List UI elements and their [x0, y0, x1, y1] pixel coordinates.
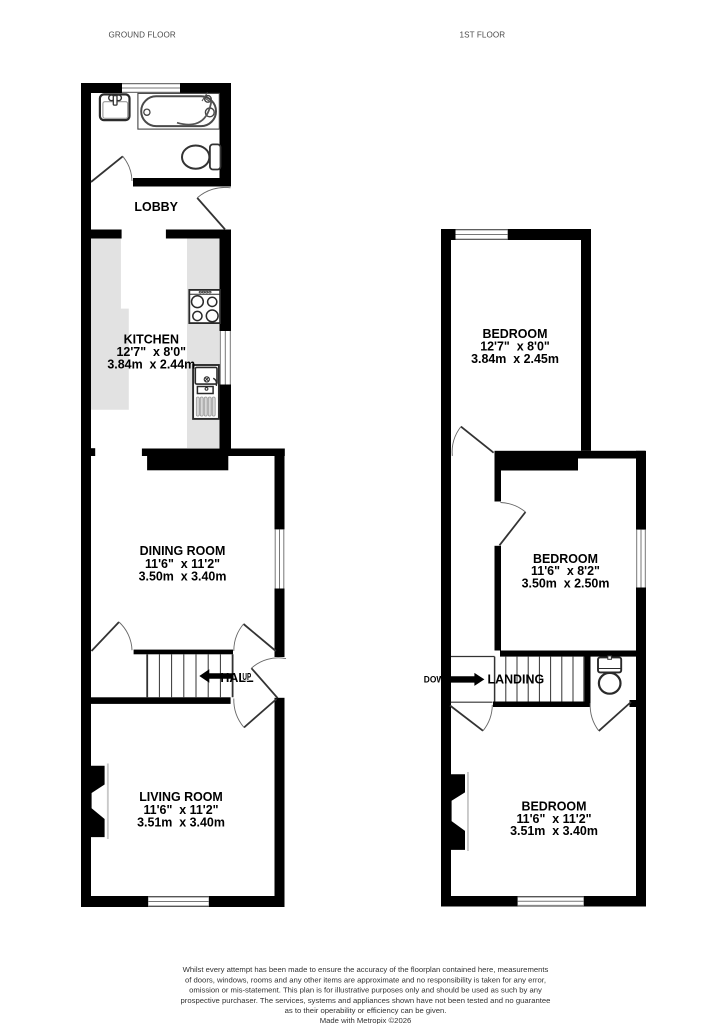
svg-text:UP: UP — [242, 672, 251, 683]
svg-text:3.51m x 3.40m: 3.51m x 3.40m — [137, 816, 225, 830]
svg-text:omission or mis-statement. Thi: omission or mis-statement. This plan is … — [189, 986, 542, 995]
svg-text:Made with Metropix ©2026: Made with Metropix ©2026 — [320, 1016, 412, 1024]
svg-text:LOBBY: LOBBY — [134, 200, 178, 214]
svg-text:3.50m x 3.40m: 3.50m x 3.40m — [139, 570, 227, 584]
svg-text:3.51m x 3.40m: 3.51m x 3.40m — [510, 824, 598, 838]
svg-text:GROUND FLOOR: GROUND FLOOR — [109, 31, 176, 40]
svg-text:LANDING: LANDING — [488, 673, 545, 687]
svg-text:1ST FLOOR: 1ST FLOOR — [460, 31, 506, 40]
svg-text:Whilst every attempt has been: Whilst every attempt has been made to en… — [183, 965, 549, 974]
svg-text:3.84m x 2.45m: 3.84m x 2.45m — [471, 352, 559, 366]
svg-text:prospective purchaser. The ser: prospective purchaser. The services, sys… — [181, 996, 551, 1005]
svg-text:as to their operability or eff: as to their operability or efficiency ca… — [285, 1006, 447, 1015]
svg-text:3.84m x 2.44m: 3.84m x 2.44m — [107, 357, 195, 371]
svg-text:of doors, windows, rooms and a: of doors, windows, rooms and any other i… — [185, 975, 546, 984]
svg-text:3.50m x 2.50m: 3.50m x 2.50m — [522, 577, 610, 591]
